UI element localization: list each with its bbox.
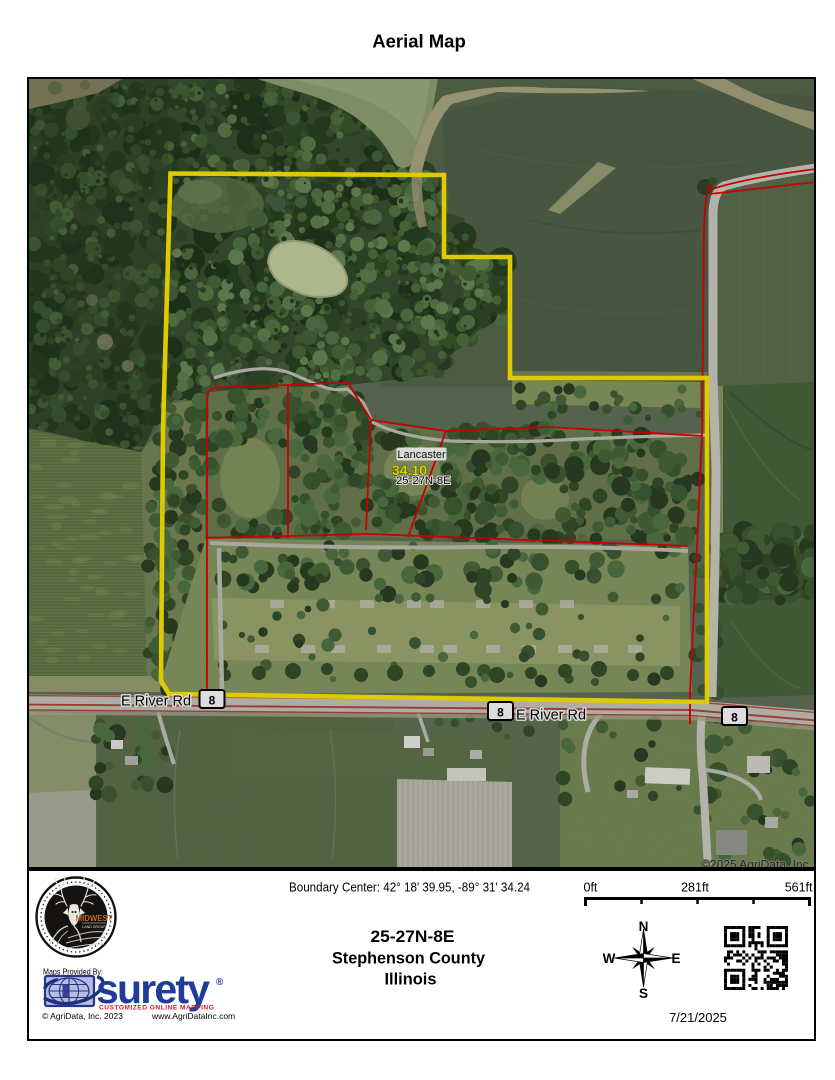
svg-text:281ft: 281ft	[681, 881, 709, 895]
svg-text:0ft: 0ft	[584, 881, 598, 895]
svg-text:Aerial Map: Aerial Map	[372, 31, 466, 52]
svg-text:561ft: 561ft	[785, 881, 813, 895]
svg-text:Boundary Center: 42° 18' 39.95: Boundary Center: 42° 18' 39.95, -89° 31'…	[289, 880, 530, 895]
svg-text:S: S	[639, 986, 648, 1001]
svg-text:© AgriData, Inc. 2023: © AgriData, Inc. 2023	[42, 1011, 123, 1021]
svg-text:N: N	[639, 919, 649, 934]
svg-text:LAND GROUP: LAND GROUP	[82, 925, 106, 929]
svg-text:25-27N-8E: 25-27N-8E	[371, 927, 455, 946]
svg-text:W: W	[603, 951, 616, 966]
svg-text:MIDWEST: MIDWEST	[76, 914, 113, 923]
svg-text:7/21/2025: 7/21/2025	[669, 1010, 727, 1025]
svg-text:®: ®	[216, 977, 224, 988]
svg-text:Illinois: Illinois	[385, 970, 437, 989]
svg-text:E: E	[671, 951, 680, 966]
svg-text:www.AgriDataInc.com: www.AgriDataInc.com	[151, 1011, 235, 1021]
svg-text:Stephenson County: Stephenson County	[332, 949, 486, 968]
